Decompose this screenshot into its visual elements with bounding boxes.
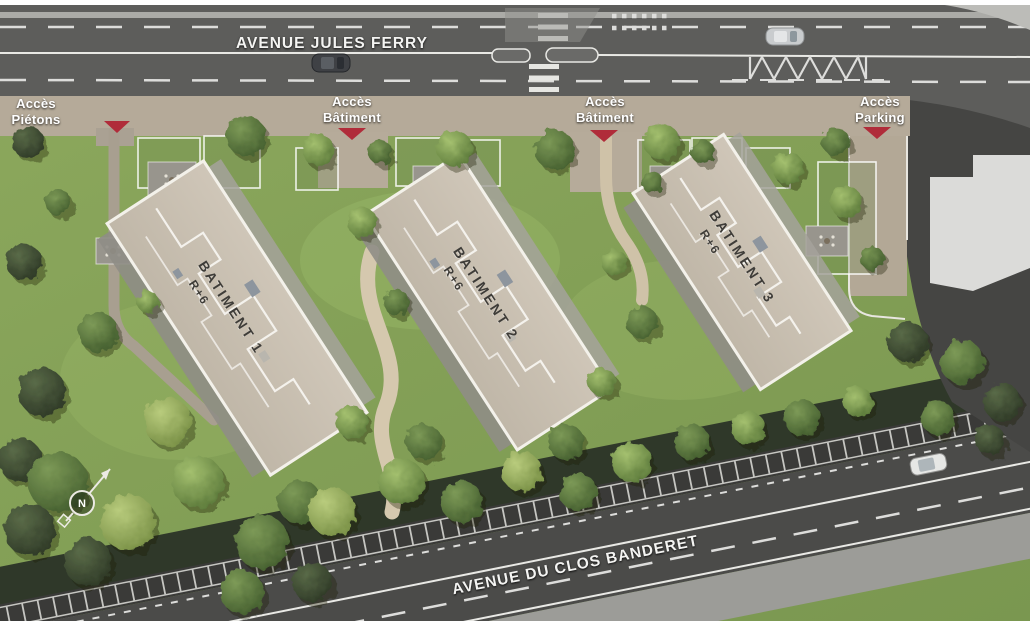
tree	[100, 494, 156, 550]
tree	[502, 452, 542, 492]
tree	[830, 186, 862, 218]
access-label-line2: Piétons	[11, 112, 60, 127]
tree	[6, 244, 42, 280]
tree	[784, 400, 820, 436]
patio-furniture	[819, 243, 822, 246]
tree	[347, 207, 377, 237]
tree	[383, 289, 409, 315]
tree	[612, 442, 652, 482]
tree	[888, 322, 928, 362]
tree	[302, 134, 334, 166]
tree	[437, 131, 473, 167]
tree	[12, 126, 44, 158]
access-label-line2: Bâtiment	[576, 110, 634, 125]
north-letter: N	[78, 498, 86, 510]
tree	[731, 411, 765, 445]
access-label-line2: Parking	[855, 110, 905, 125]
avenue-jules-ferry-label: AVENUE JULES FERRY	[236, 35, 428, 52]
tree	[644, 124, 680, 160]
tree	[843, 387, 873, 417]
site-plan-image: AVENUE JULES FERRY AVENUE DU CLOS BANDER…	[0, 0, 1030, 621]
tree	[292, 562, 332, 602]
access-label-line1: Accès	[585, 94, 625, 109]
tree	[772, 152, 804, 184]
patio-furniture	[164, 174, 167, 177]
traffic-island	[492, 49, 530, 62]
tree	[441, 481, 483, 523]
tree	[78, 312, 118, 352]
tree	[4, 504, 56, 556]
tree	[975, 425, 1005, 455]
site-plan-svg: AVENUE JULES FERRY AVENUE DU CLOS BANDER…	[0, 0, 1030, 621]
tree	[601, 249, 627, 275]
tree	[921, 401, 955, 435]
tree	[144, 398, 192, 446]
tree	[626, 306, 658, 338]
tree	[336, 406, 368, 438]
tree	[18, 368, 66, 416]
access-label-line1: Accès	[16, 96, 56, 111]
tree	[64, 538, 112, 586]
tree	[379, 459, 425, 505]
tree	[559, 473, 597, 511]
access-label-line1: Accès	[860, 94, 900, 109]
patio-furniture	[831, 243, 834, 246]
tree	[137, 291, 159, 313]
traffic-island	[546, 48, 598, 62]
tree	[368, 140, 392, 164]
car-icon	[766, 28, 804, 45]
tree	[641, 171, 663, 193]
top-border	[0, 0, 1030, 5]
tree	[220, 570, 264, 614]
sidewalk-band	[0, 96, 910, 136]
access-label-line1: Accès	[332, 94, 372, 109]
tree	[822, 128, 850, 156]
tree	[860, 246, 884, 270]
tree	[674, 424, 710, 460]
tree	[940, 340, 984, 384]
tree	[308, 488, 356, 536]
tree	[172, 456, 224, 508]
tree	[235, 515, 289, 569]
patio-furniture	[819, 235, 822, 238]
tree	[406, 424, 442, 460]
tree	[691, 140, 715, 164]
tree	[548, 424, 584, 460]
access-label-line2: Bâtiment	[323, 110, 381, 125]
tree	[588, 368, 616, 396]
tree	[226, 116, 266, 156]
car-icon	[312, 54, 350, 72]
tree	[983, 383, 1021, 421]
patio-furniture	[824, 238, 830, 244]
patio-furniture	[831, 235, 834, 238]
tree	[45, 189, 71, 215]
tree	[535, 130, 575, 170]
